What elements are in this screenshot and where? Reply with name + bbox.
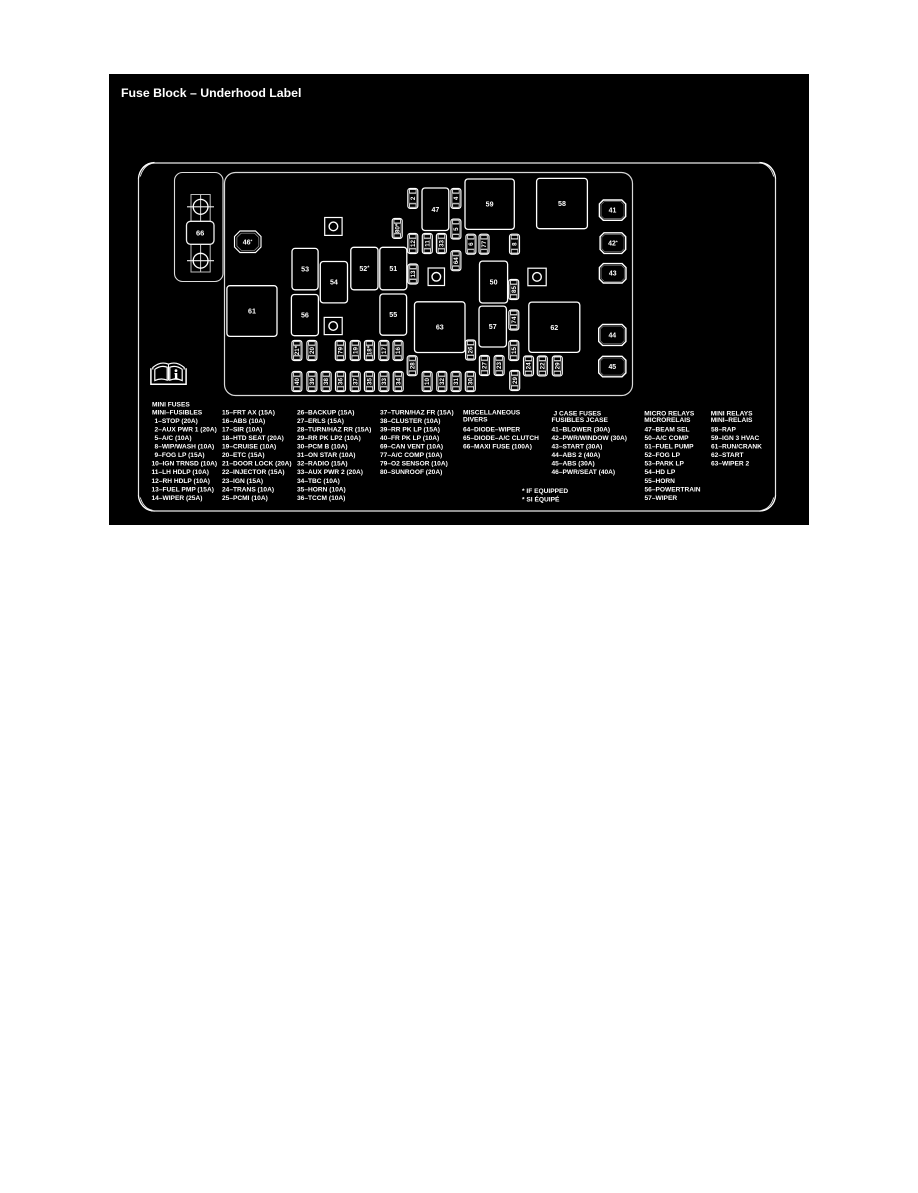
svg-text:18*: 18* [367,345,374,355]
svg-text:35–HORN (10A): 35–HORN (10A) [297,486,346,493]
svg-text:15: 15 [511,347,518,354]
svg-text:61–RUN/CRANK: 61–RUN/CRANK [711,444,762,451]
svg-text:17–SIR (10A): 17–SIR (10A) [222,427,262,434]
svg-text:13: 13 [410,270,417,277]
svg-text:11–LH HDLP (10A): 11–LH HDLP (10A) [152,469,209,476]
svg-text:5: 5 [453,227,460,231]
svg-text:10: 10 [424,378,431,385]
svg-text:59: 59 [486,201,494,209]
svg-text:77–A/C COMP (10A): 77–A/C COMP (10A) [380,452,442,459]
svg-text:55–HORN: 55–HORN [645,478,676,485]
svg-text:12: 12 [410,240,417,247]
svg-text:23–IGN (15A): 23–IGN (15A) [222,478,263,485]
svg-text:1–STOP (20A): 1–STOP (20A) [155,418,198,425]
svg-text:29–RR PK LP2 (10A): 29–RR PK LP2 (10A) [297,435,361,442]
svg-text:52–FOG LP: 52–FOG LP [645,452,681,459]
svg-text:10–IGN TRNSD (10A): 10–IGN TRNSD (10A) [152,461,218,468]
svg-text:34–TBC (10A): 34–TBC (10A) [297,478,340,485]
svg-text:29: 29 [512,377,519,384]
svg-text:MINI FUSES: MINI FUSES [152,402,190,409]
svg-text:8–WIP/WASH (10A): 8–WIP/WASH (10A) [155,444,215,451]
svg-text:16: 16 [395,347,402,354]
svg-text:66: 66 [196,229,204,238]
svg-text:62–START: 62–START [711,452,744,459]
svg-text:56: 56 [301,312,309,320]
svg-text:32–RADIO (15A): 32–RADIO (15A) [297,461,348,468]
svg-text:43: 43 [609,271,617,278]
svg-text:MINI–FUSIBLES: MINI–FUSIBLES [152,409,203,416]
svg-text:63–WIPER 2: 63–WIPER 2 [711,461,749,468]
svg-text:21–DOOR LOCK (20A): 21–DOOR LOCK (20A) [222,461,292,468]
svg-text:6: 6 [468,242,475,246]
svg-text:20–ETC (15A): 20–ETC (15A) [222,452,265,459]
svg-text:40: 40 [294,378,301,385]
svg-text:20: 20 [309,347,316,354]
svg-text:16–ABS (10A): 16–ABS (10A) [222,418,265,425]
svg-text:23: 23 [496,362,503,369]
svg-text:22–INJECTOR (15A): 22–INJECTOR (15A) [222,469,285,476]
svg-text:50–A/C COMP: 50–A/C COMP [645,435,690,442]
svg-text:42–PWR/WINDOW (30A): 42–PWR/WINDOW (30A) [552,435,627,442]
svg-text:21*: 21* [294,345,301,355]
svg-text:26–BACKUP (15A): 26–BACKUP (15A) [297,409,354,416]
svg-text:* IF EQUIPPED: * IF EQUIPPED [522,488,568,495]
svg-text:30: 30 [467,378,474,385]
svg-text:58–RAP: 58–RAP [711,427,737,434]
svg-text:80*: 80* [394,223,401,233]
svg-text:31–ON STAR (10A): 31–ON STAR (10A) [297,452,356,459]
svg-text:80–SUNROOF (20A): 80–SUNROOF (20A) [380,469,442,476]
svg-text:59–IGN 3 HVAC: 59–IGN 3 HVAC [711,435,759,442]
svg-text:61: 61 [248,308,256,316]
svg-text:32: 32 [439,378,446,385]
svg-text:58: 58 [558,200,566,208]
svg-text:53: 53 [301,266,309,274]
svg-text:47–BEAM SEL: 47–BEAM SEL [645,427,690,434]
svg-text:54–HD LP: 54–HD LP [645,469,676,476]
svg-text:41–BLOWER (30A): 41–BLOWER (30A) [552,427,611,434]
svg-text:45–ABS (30A): 45–ABS (30A) [552,461,595,468]
svg-text:62: 62 [550,324,558,332]
svg-text:36–TCCM (10A): 36–TCCM (10A) [297,495,345,502]
svg-text:2–AUX PWR 1 (20A): 2–AUX PWR 1 (20A) [155,427,217,434]
svg-text:37–TURN/HAZ FR (15A): 37–TURN/HAZ FR (15A) [380,409,454,416]
svg-text:65–DIODE–A/C CLUTCH: 65–DIODE–A/C CLUTCH [463,435,539,442]
svg-text:79–O2 SENSOR (10A): 79–O2 SENSOR (10A) [380,461,448,468]
svg-text:38–CLUSTER (10A): 38–CLUSTER (10A) [380,418,440,425]
svg-text:15–FRT AX (15A): 15–FRT AX (15A) [222,409,275,416]
svg-text:69–CAN VENT (10A): 69–CAN VENT (10A) [380,444,443,451]
svg-text:46–PWR/SEAT (40A): 46–PWR/SEAT (40A) [552,469,616,476]
svg-text:DIVERS: DIVERS [463,417,488,424]
svg-text:24: 24 [526,362,533,369]
svg-text:37: 37 [352,378,359,385]
svg-text:5–A/C (10A): 5–A/C (10A) [155,435,192,442]
svg-text:25–PCMI (10A): 25–PCMI (10A) [222,495,268,502]
svg-text:45: 45 [608,364,616,371]
svg-text:33–AUX PWR 2 (20A): 33–AUX PWR 2 (20A) [297,469,363,476]
svg-text:66–MAXI FUSE (100A): 66–MAXI FUSE (100A) [463,444,532,451]
svg-text:27–ERLS (15A): 27–ERLS (15A) [297,418,344,425]
svg-text:56–POWERTRAIN: 56–POWERTRAIN [645,486,701,493]
svg-text:43–START (30A): 43–START (30A) [552,444,603,451]
svg-text:39: 39 [309,378,316,385]
svg-text:9–FOG LP (15A): 9–FOG LP (15A) [155,452,205,459]
svg-text:47: 47 [431,206,439,214]
svg-text:19: 19 [352,347,359,354]
svg-text:8: 8 [512,242,519,246]
svg-text:FUSIBLES JCASE: FUSIBLES JCASE [552,417,609,424]
svg-text:11: 11 [424,240,431,247]
svg-text:64–DIODE–WIPER: 64–DIODE–WIPER [463,427,520,434]
svg-text:19–CRUISE (10A): 19–CRUISE (10A) [222,444,276,451]
svg-text:41: 41 [609,208,617,215]
svg-text:17: 17 [381,347,388,354]
svg-text:MINI–RELAIS: MINI–RELAIS [711,417,753,424]
svg-text:27: 27 [482,362,489,369]
svg-text:44: 44 [608,332,616,339]
svg-text:18–HTD SEAT (20A): 18–HTD SEAT (20A) [222,435,284,442]
svg-text:50: 50 [490,279,498,287]
svg-text:77: 77 [481,240,488,247]
svg-text:39–RR PK LP (15A): 39–RR PK LP (15A) [380,427,440,434]
svg-text:74: 74 [511,316,518,323]
svg-text:35: 35 [367,378,374,385]
svg-text:54: 54 [330,279,338,287]
svg-text:28–TURN/HAZ RR (15A): 28–TURN/HAZ RR (15A) [297,427,371,434]
svg-text:40–FR PK LP (10A): 40–FR PK LP (10A) [380,435,439,442]
svg-text:Fuse Block – Underhood Label: Fuse Block – Underhood Label [121,86,301,100]
svg-text:79: 79 [337,347,344,354]
svg-text:63: 63 [436,324,444,332]
svg-text:30–PCM B (10A): 30–PCM B (10A) [297,444,348,451]
svg-text:57–WIPER: 57–WIPER [645,495,678,502]
svg-text:31: 31 [453,378,460,385]
svg-text:34: 34 [395,378,402,385]
svg-text:36: 36 [338,378,345,385]
svg-text:26: 26 [468,346,475,353]
svg-text:64: 64 [453,257,460,264]
svg-text:22: 22 [539,362,546,369]
svg-text:29: 29 [554,362,561,369]
svg-text:* SI ÉQUIPÉ: * SI ÉQUIPÉ [522,495,560,504]
svg-text:51–FUEL PUMP: 51–FUEL PUMP [645,444,695,451]
svg-text:MISCELLANEOUS: MISCELLANEOUS [463,409,521,416]
svg-text:13–FUEL PMP (15A): 13–FUEL PMP (15A) [152,486,214,493]
svg-text:4: 4 [453,196,460,200]
svg-text:51: 51 [389,265,397,273]
svg-text:12–RH HDLP (10A): 12–RH HDLP (10A) [152,478,211,485]
svg-text:28: 28 [409,362,416,369]
svg-text:38: 38 [323,378,330,385]
svg-text:33: 33 [439,240,446,247]
svg-text:53–PARK LP: 53–PARK LP [645,461,685,468]
svg-text:14–WIPER (25A): 14–WIPER (25A) [152,495,203,502]
svg-text:44–ABS 2 (40A): 44–ABS 2 (40A) [552,452,601,459]
svg-text:57: 57 [489,323,497,331]
svg-text:24–TRANS (10A): 24–TRANS (10A) [222,486,274,493]
svg-text:MICRORELAIS: MICRORELAIS [644,417,691,424]
svg-text:85: 85 [511,286,518,293]
svg-text:55: 55 [389,311,397,319]
svg-text:2: 2 [410,196,417,200]
svg-text:33: 33 [381,378,388,385]
